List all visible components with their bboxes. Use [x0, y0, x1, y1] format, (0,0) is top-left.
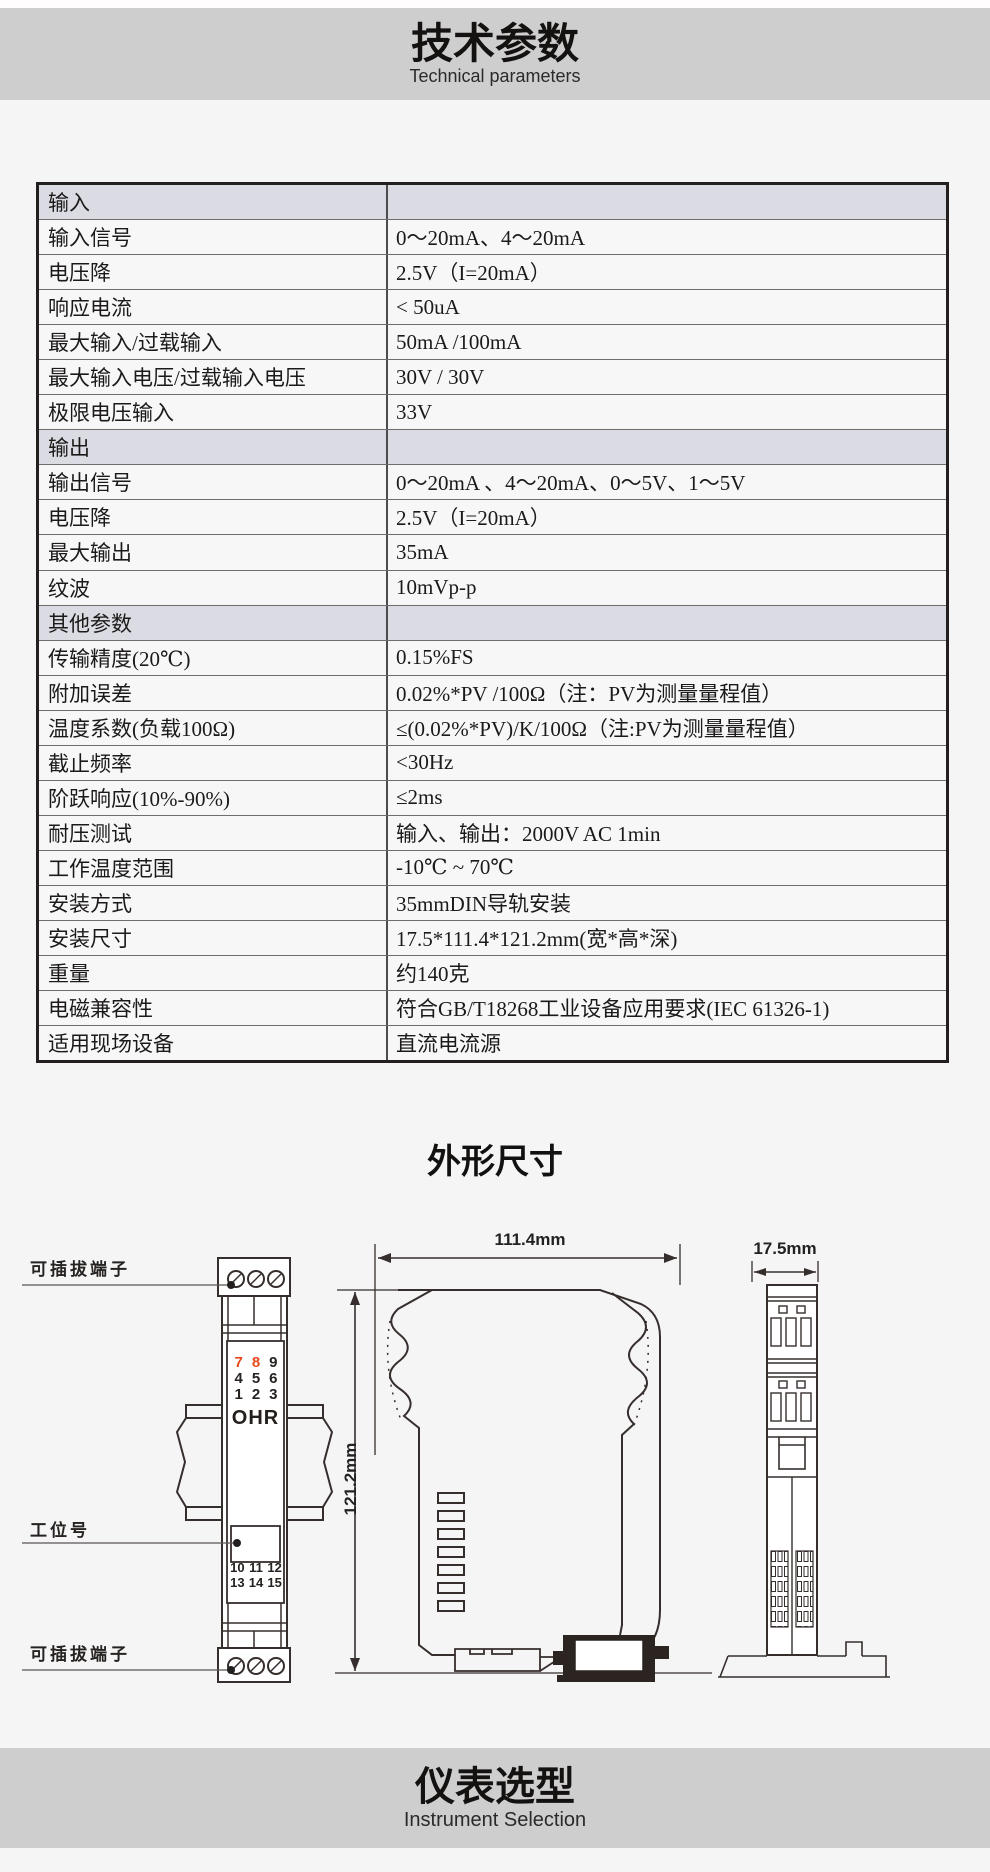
- spec-label: 最大输入电压/过载输入电压: [39, 360, 388, 394]
- section-label: 输入: [39, 185, 388, 219]
- table-row: 工作温度范围-10℃ ~ 70℃: [39, 851, 946, 886]
- terminal-number: 13: [228, 1575, 247, 1590]
- selection-subtitle: Instrument Selection: [404, 1809, 586, 1831]
- spec-value: ≤(0.02%*PV)/K/100Ω（注:PV为测量量程值）: [388, 713, 946, 743]
- terminal-number: 1: [230, 1387, 247, 1403]
- table-section-row: 其他参数: [39, 606, 946, 641]
- spec-label: 输出信号: [39, 465, 388, 499]
- terminal-number: 6: [265, 1371, 282, 1387]
- front-view-drawing: [22, 1258, 332, 1682]
- terminal-number: 11: [247, 1560, 266, 1575]
- table-row: 电压降2.5V（I=20mA）: [39, 255, 946, 290]
- table-row: 电磁兼容性符合GB/T18268工业设备应用要求(IEC 61326-1): [39, 991, 946, 1026]
- table-section-row: 输出: [39, 430, 946, 465]
- terminal-number: 4: [230, 1371, 247, 1387]
- spec-label: 电压降: [39, 500, 388, 534]
- terminal-number: 5: [247, 1371, 264, 1387]
- terminal-number: 10: [228, 1560, 247, 1575]
- spec-value: 直流电流源: [388, 1028, 946, 1058]
- hatch-dots: [388, 1321, 649, 1428]
- terminal-number: 7: [230, 1355, 247, 1371]
- spec-label: 阶跃响应(10%-90%): [39, 781, 388, 815]
- spec-label: 最大输入/过载输入: [39, 325, 388, 359]
- spec-value: 0.02%*PV /100Ω（注：PV为测量量程值）: [388, 678, 946, 708]
- vent-slots: [438, 1493, 464, 1611]
- table-row: 截止频率<30Hz: [39, 746, 946, 781]
- table-row: 电压降2.5V（I=20mA）: [39, 500, 946, 535]
- selection-title: 仪表选型: [415, 1765, 575, 1809]
- spec-label: 安装方式: [39, 886, 388, 920]
- witness-lines: [335, 1244, 712, 1673]
- table-row: 输入信号0～20mA、4～20mA: [39, 220, 946, 255]
- terminal-numbers-bottom: 10 11 12 13 14 15: [228, 1560, 284, 1590]
- spec-label: 传输精度(20℃): [39, 641, 388, 675]
- spec-value: 33V: [388, 400, 946, 425]
- table-row: 适用现场设备直流电流源: [39, 1026, 946, 1060]
- terminal-number: 8: [247, 1355, 264, 1371]
- leader-lines: [22, 1285, 237, 1670]
- spec-label: 重量: [39, 956, 388, 990]
- spec-value: 约140克: [388, 958, 946, 988]
- instrument-selection-header: 仪表选型 Instrument Selection: [0, 1748, 990, 1848]
- technical-parameters-header: 技术参数 Technical parameters: [0, 8, 990, 100]
- table-row: 耐压测试输入、输出：2000V AC 1min: [39, 816, 946, 851]
- table-row: 重量约140克: [39, 956, 946, 991]
- terminal-number: 2: [247, 1387, 264, 1403]
- side-view-drawing: [335, 1244, 712, 1682]
- table-row: 温度系数(负载100Ω)≤(0.02%*PV)/K/100Ω（注:PV为测量量程…: [39, 711, 946, 746]
- table-section-row: 输入: [39, 185, 946, 220]
- spec-value: < 50uA: [388, 295, 946, 320]
- spec-value: -10℃ ~ 70℃: [388, 855, 946, 880]
- spec-label: 输入信号: [39, 220, 388, 254]
- din-clip: [455, 1649, 563, 1671]
- table-row: 阶跃响应(10%-90%)≤2ms: [39, 781, 946, 816]
- spec-value: 35mA: [388, 540, 946, 565]
- table-row: 最大输入/过载输入50mA /100mA: [39, 325, 946, 360]
- spec-label: 温度系数(负载100Ω): [39, 711, 388, 745]
- top-margin: [0, 0, 990, 8]
- spec-value: 0.15%FS: [388, 645, 946, 670]
- table-row: 响应电流< 50uA: [39, 290, 946, 325]
- section-label: 输出: [39, 430, 388, 464]
- spec-label: 工作温度范围: [39, 851, 388, 885]
- table-row: 极限电压输入33V: [39, 395, 946, 430]
- spec-value: 2.5V（I=20mA）: [388, 502, 946, 532]
- spec-value: 0～20mA、4～20mA: [388, 222, 946, 252]
- brand-logo: OHR: [227, 1407, 284, 1430]
- depth-dimension: 17.5mm: [745, 1239, 825, 1259]
- table-row: 最大输入电压/过载输入电压30V / 30V: [39, 360, 946, 395]
- table-row: 最大输出35mA: [39, 535, 946, 570]
- section-label: 其他参数: [39, 606, 388, 640]
- spec-label: 耐压测试: [39, 816, 388, 850]
- spec-value: 输入、输出：2000V AC 1min: [388, 818, 946, 848]
- table-row: 传输精度(20℃)0.15%FS: [39, 641, 946, 676]
- spec-label: 电压降: [39, 255, 388, 289]
- spec-value: 50mA /100mA: [388, 330, 946, 355]
- terminal-number: 12: [265, 1560, 284, 1575]
- vent-grid: [771, 1551, 788, 1627]
- datasheet-page: 技术参数 Technical parameters 输入 输入信号0～20mA、…: [0, 0, 990, 1872]
- terminal-number: 3: [265, 1387, 282, 1403]
- spec-value: 10mVp-p: [388, 575, 946, 600]
- din-rail-right: [287, 1405, 332, 1520]
- pluggable-terminal-label-bottom: 可插拔端子: [30, 1640, 130, 1665]
- spec-label: 截止频率: [39, 746, 388, 780]
- pluggable-terminal-label-top: 可插拔端子: [30, 1255, 130, 1280]
- spec-value: 35mmDIN导轨安装: [388, 888, 946, 918]
- terminal-number: 14: [247, 1575, 266, 1590]
- width-dimension: 111.4mm: [455, 1230, 605, 1250]
- page-subtitle: Technical parameters: [409, 66, 580, 86]
- spec-label: 电磁兼容性: [39, 991, 388, 1025]
- spec-label: 纹波: [39, 571, 388, 605]
- vent-grid: [796, 1551, 813, 1627]
- rear-contour: [612, 1293, 647, 1656]
- spec-label: 极限电压输入: [39, 395, 388, 429]
- spec-value: <30Hz: [388, 750, 946, 775]
- terminal-number: 15: [265, 1575, 284, 1590]
- spec-label: 响应电流: [39, 290, 388, 324]
- station-number-label: 工位号: [30, 1516, 90, 1541]
- spec-label: 安装尺寸: [39, 921, 388, 955]
- table-row: 安装尺寸17.5*111.4*121.2mm(宽*高*深): [39, 921, 946, 956]
- table-row: 附加误差0.02%*PV /100Ω（注：PV为测量量程值）: [39, 676, 946, 711]
- page-title: 技术参数: [411, 22, 579, 66]
- spec-value: 30V / 30V: [388, 365, 946, 390]
- table-row: 纹波10mVp-p: [39, 571, 946, 606]
- spec-value: 符合GB/T18268工业设备应用要求(IEC 61326-1): [388, 993, 946, 1023]
- spec-label: 附加误差: [39, 676, 388, 710]
- height-dimension: 121.2mm: [341, 1426, 363, 1532]
- spec-value: 17.5*111.4*121.2mm(宽*高*深): [388, 923, 946, 953]
- terminal-numbers-top: 7 8 9 4 5 6 1 2 3: [230, 1355, 282, 1403]
- top-view-drawing: [718, 1261, 890, 1677]
- terminal-number: 9: [265, 1355, 282, 1371]
- table-row: 输出信号0～20mA 、4～20mA、0～5V、1～5V: [39, 465, 946, 500]
- spec-value: ≤2ms: [388, 785, 946, 810]
- spec-label: 最大输出: [39, 535, 388, 569]
- din-rail-left: [177, 1405, 222, 1520]
- spec-value: 2.5V（I=20mA）: [388, 257, 946, 287]
- outline-dimensions-title: 外形尺寸: [0, 1134, 990, 1183]
- outline-drawings: [0, 1225, 990, 1745]
- spec-label: 适用现场设备: [39, 1026, 388, 1060]
- spec-table: 输入 输入信号0～20mA、4～20mA 电压降2.5V（I=20mA） 响应电…: [36, 182, 949, 1063]
- spec-value: 0～20mA 、4～20mA、0～5V、1～5V: [388, 467, 946, 497]
- module-outline: [398, 1290, 660, 1669]
- table-row: 安装方式35mmDIN导轨安装: [39, 886, 946, 921]
